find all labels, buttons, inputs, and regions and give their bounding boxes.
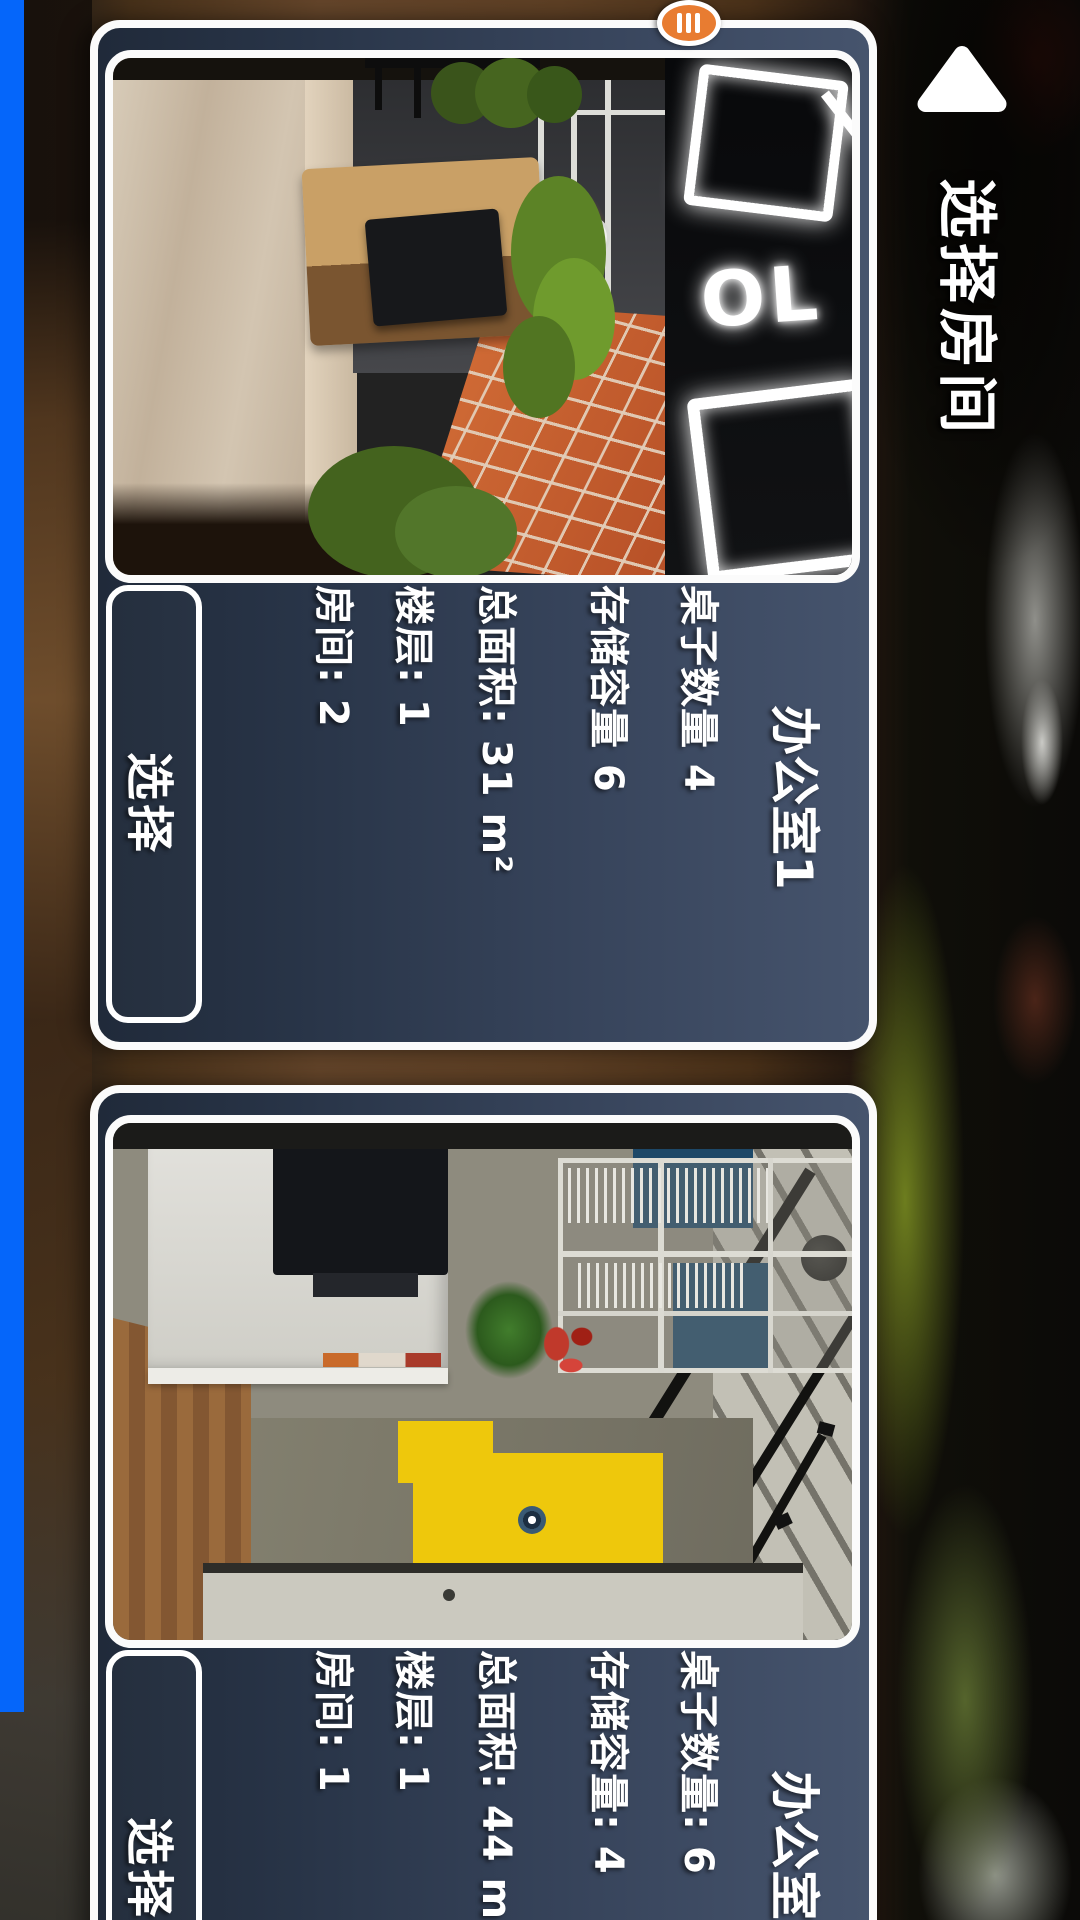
- neon-sign-text: OL: [698, 249, 854, 354]
- stat-floor: 楼层: 1: [391, 1650, 435, 1793]
- stat-desk-count: 桌子数量: 6: [676, 1650, 720, 1875]
- stat-rooms: 房间: 1: [311, 1650, 355, 1793]
- back-triangle-icon: [912, 42, 1012, 116]
- select-button[interactable]: 选择: [106, 1650, 202, 1920]
- app-viewport: 选择房间: [0, 0, 1080, 1920]
- room-photo-art: OL: [113, 58, 852, 575]
- stat-desk-count: 桌子数量 4: [676, 585, 720, 793]
- stat-floor: 楼层: 1: [391, 585, 435, 728]
- room-card-office2: 办公室2 桌子数量: 6 存储容量: 4 总面积: 44 m² 楼层: 1 房间…: [90, 1085, 877, 1920]
- landscape-stage: 选择房间: [0, 0, 1080, 1920]
- table: [203, 1563, 803, 1640]
- loading-progress-bar: [0, 0, 24, 1712]
- stat-storage: 存储容量: 4: [586, 1650, 630, 1875]
- neon-square: [683, 63, 849, 222]
- hamburger-icon: [696, 13, 701, 33]
- red-flowers: [535, 1315, 607, 1387]
- stat-area: 总面积: 31 m²: [474, 585, 518, 874]
- stat-rooms: 房间: 2: [311, 585, 355, 728]
- back-button[interactable]: [912, 42, 1012, 116]
- stat-storage: 存储容量 6: [586, 585, 630, 793]
- room-photo-art: [113, 1123, 852, 1640]
- drawer-handle-button[interactable]: [657, 0, 721, 46]
- room-title: 办公室2: [765, 1633, 823, 1920]
- room-photo: OL: [105, 50, 860, 583]
- page-title: 选择房间: [936, 178, 996, 438]
- room-photo: [105, 1115, 860, 1648]
- stat-area: 总面积: 44 m²: [474, 1650, 518, 1920]
- room-card-office1: OL 办公室1 桌子数量 4 存储容量 6 总面积: 31 m² 楼层: 1 房…: [90, 20, 877, 1050]
- room-title: 办公室1: [765, 568, 823, 1027]
- select-button[interactable]: 选择: [106, 585, 202, 1023]
- desk-monitor: [365, 208, 508, 326]
- neon-square: [686, 378, 860, 583]
